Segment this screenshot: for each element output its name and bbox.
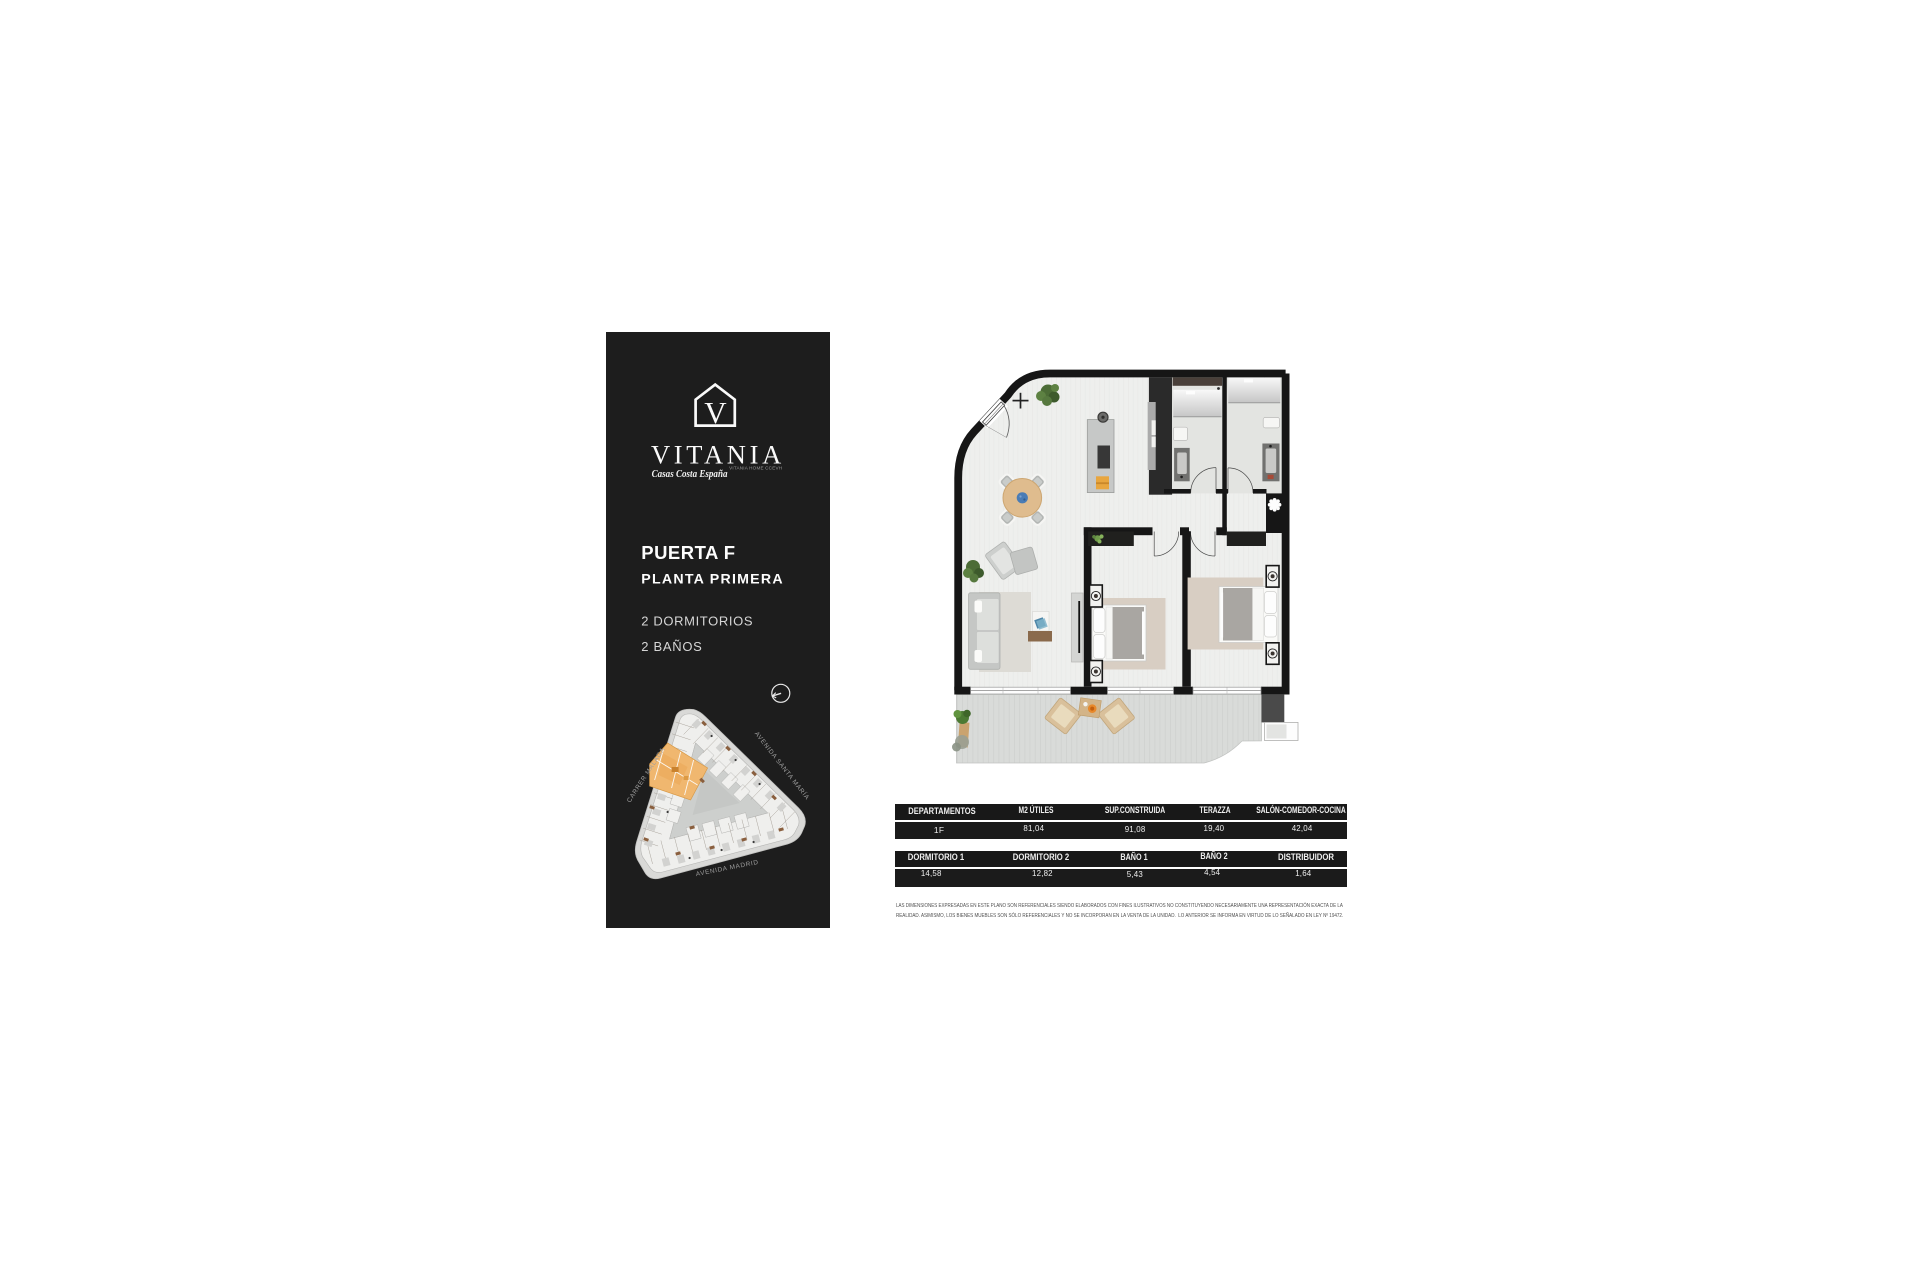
svg-text:VITANIA HOME CCEVH: VITANIA HOME CCEVH [729, 465, 782, 470]
svg-text:V: V [705, 395, 728, 430]
svg-text:2 BAÑOS: 2 BAÑOS [642, 639, 703, 654]
svg-text:Casas Costa España: Casas Costa España [652, 469, 728, 481]
svg-text:PLANTA PRIMERA: PLANTA PRIMERA [642, 571, 785, 587]
svg-text:PUERTA F: PUERTA F [642, 542, 736, 563]
svg-text:2 DORMITORIOS: 2 DORMITORIOS [642, 614, 754, 629]
